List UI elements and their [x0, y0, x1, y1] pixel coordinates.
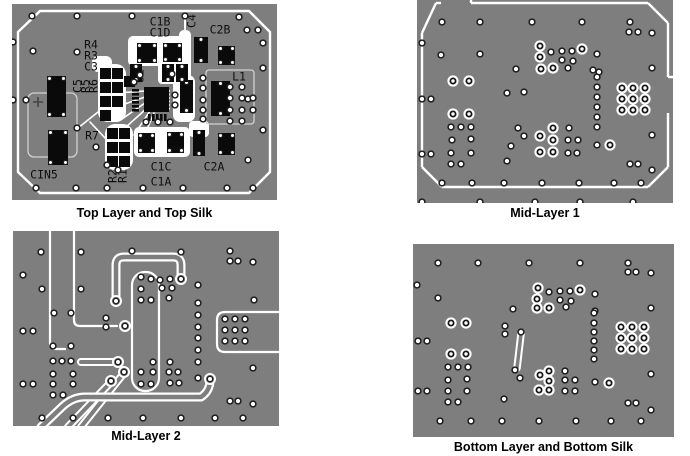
pad-dot [134, 65, 138, 69]
via [591, 329, 597, 335]
via [222, 327, 228, 333]
via [200, 116, 206, 122]
component-pad [132, 101, 139, 104]
via [104, 162, 110, 168]
via [513, 66, 519, 72]
component-pad [48, 130, 68, 165]
via [138, 297, 144, 303]
pad-dot [197, 152, 201, 156]
via [250, 259, 256, 265]
via [74, 125, 80, 131]
silk-label-C2B: C2B [210, 23, 231, 37]
via [590, 67, 596, 73]
via [594, 142, 600, 148]
component-pad [112, 82, 123, 93]
via [477, 19, 483, 25]
via [594, 84, 600, 90]
via [129, 248, 135, 254]
component-pad [107, 128, 118, 139]
via [438, 52, 444, 58]
via [428, 96, 434, 102]
pad-dot [185, 109, 189, 113]
via [521, 133, 527, 139]
via [167, 359, 173, 365]
component-pad [100, 96, 111, 107]
via [419, 199, 425, 203]
pad-dot [199, 38, 203, 42]
via [115, 167, 121, 173]
via [475, 260, 481, 266]
via [50, 371, 56, 377]
via [260, 65, 266, 71]
component-pad [152, 114, 155, 121]
component-pad [100, 68, 111, 79]
via [572, 377, 578, 383]
via [557, 297, 563, 303]
via [167, 119, 173, 125]
via [521, 89, 527, 95]
pad-dot [180, 133, 184, 137]
via [195, 335, 201, 341]
via [232, 338, 238, 344]
via [176, 380, 182, 386]
via [195, 282, 201, 288]
via [649, 167, 655, 173]
via [103, 315, 109, 321]
component-pad [47, 76, 66, 117]
component-pad [100, 82, 111, 93]
via [572, 388, 578, 394]
via [235, 258, 241, 264]
silk-label-C2A: C2A [204, 160, 225, 174]
via [172, 102, 178, 108]
via [577, 260, 583, 266]
via [424, 338, 430, 344]
board-image-bottom-layer-bottom-silk [413, 244, 674, 437]
via [477, 51, 483, 57]
via [242, 327, 248, 333]
via [222, 316, 228, 322]
via [172, 92, 178, 98]
via [78, 249, 84, 255]
via [70, 415, 76, 421]
via [159, 285, 165, 291]
via [235, 398, 241, 404]
via [167, 276, 173, 282]
via [29, 13, 35, 19]
pad-dot [64, 161, 68, 165]
via [104, 185, 110, 191]
via [594, 114, 600, 120]
via [255, 27, 261, 33]
pad-dot [219, 134, 223, 138]
via [576, 180, 582, 186]
via [455, 399, 461, 405]
via [70, 381, 76, 387]
pad-dot [151, 149, 155, 153]
via [468, 150, 474, 156]
via [137, 72, 143, 78]
via [178, 249, 184, 255]
component-pad [107, 142, 118, 153]
component-pad [132, 97, 139, 100]
via [559, 48, 565, 54]
via [591, 356, 597, 362]
via [23, 97, 29, 103]
via [591, 347, 597, 353]
via [227, 258, 233, 264]
via [501, 396, 507, 402]
via [195, 359, 201, 365]
via [415, 338, 421, 344]
via [594, 94, 600, 100]
via [627, 19, 633, 25]
via [140, 415, 146, 421]
via [74, 49, 80, 55]
via [499, 418, 505, 424]
via [627, 161, 633, 167]
pad-dot [48, 113, 52, 117]
pad-dot [178, 44, 182, 48]
via [611, 180, 617, 186]
via [155, 119, 161, 125]
via [464, 376, 470, 382]
via [20, 272, 26, 278]
pad-dot [180, 78, 184, 82]
via [529, 19, 535, 25]
via [236, 14, 242, 20]
via [414, 282, 420, 288]
via [260, 40, 266, 46]
via [195, 312, 201, 318]
via [129, 13, 135, 19]
via [477, 199, 483, 203]
via [93, 144, 99, 150]
via [635, 29, 641, 35]
via [20, 328, 26, 334]
pad-dot [151, 134, 155, 138]
pad-dot [153, 59, 157, 63]
via [78, 286, 84, 292]
pad-dot [48, 77, 52, 81]
pad-dot [197, 131, 201, 135]
via [169, 285, 175, 291]
via [138, 274, 144, 280]
via [175, 369, 181, 375]
via [502, 331, 508, 337]
via [633, 400, 639, 406]
via [536, 418, 542, 424]
component-pad [112, 96, 123, 107]
via [649, 65, 655, 71]
via [439, 19, 445, 25]
via [150, 369, 156, 375]
caption-top-layer-top-silk: Top Layer and Top Silk [12, 206, 277, 220]
caption-bottom-layer-bottom-silk: Bottom Layer and Bottom Silk [413, 440, 674, 454]
panel-mid-layer-2 [13, 231, 279, 426]
via [103, 324, 109, 330]
via [419, 96, 425, 102]
via [468, 418, 474, 424]
via [59, 358, 65, 364]
via [250, 365, 256, 371]
via [200, 97, 206, 103]
via [448, 150, 454, 156]
via [591, 338, 597, 344]
pad-dot [219, 82, 223, 86]
via [200, 107, 206, 113]
via [245, 157, 251, 163]
via [445, 399, 451, 405]
via [592, 291, 598, 297]
via [60, 392, 66, 398]
via [512, 367, 518, 373]
via [565, 65, 571, 71]
via [515, 125, 521, 131]
via [569, 48, 575, 54]
pad-dot [219, 112, 223, 116]
panel-top-layer-top-silk: C1BC1DC4C2BR4R3C3C5R5R6U1L1R7C1CC2AC1AR2… [12, 4, 277, 200]
via [579, 19, 585, 25]
via [50, 392, 56, 398]
via [594, 51, 600, 57]
via [448, 161, 454, 167]
via [166, 295, 172, 301]
component-pad [132, 109, 139, 112]
via [242, 316, 248, 322]
via [30, 48, 36, 54]
pad-dot [168, 133, 172, 137]
component-pad [144, 87, 169, 112]
via [38, 249, 44, 255]
pad-dot [139, 149, 143, 153]
via [224, 185, 230, 191]
via [143, 119, 149, 125]
via [148, 297, 154, 303]
via [227, 118, 233, 124]
via [546, 289, 552, 295]
via [465, 364, 471, 370]
via [195, 324, 201, 330]
via [625, 269, 631, 275]
component-pad [164, 114, 167, 121]
silk-label-C1D: C1D [150, 26, 171, 40]
via [227, 107, 233, 113]
via [455, 364, 461, 370]
component-pad [119, 128, 130, 139]
via [565, 150, 571, 156]
pcb-layers-figure: C1BC1DC4C2BR4R3C3C5R5R6U1L1R7C1CC2AC1AR2… [0, 0, 690, 456]
via [180, 185, 186, 191]
via [435, 295, 441, 301]
via [239, 118, 245, 124]
component-pad [132, 93, 139, 96]
via [570, 58, 576, 64]
via [468, 136, 474, 142]
via [424, 388, 430, 394]
via [138, 286, 144, 292]
via [182, 13, 188, 19]
via [594, 124, 600, 130]
via [648, 305, 654, 311]
via [518, 329, 524, 335]
via [232, 327, 238, 333]
via [195, 300, 201, 306]
via [445, 364, 451, 370]
via [419, 151, 425, 157]
panel-mid-layer-1 [417, 0, 673, 203]
via [250, 107, 256, 113]
pad-dot [164, 44, 168, 48]
via [12, 97, 16, 103]
board-image-top-layer-top-silk: C1BC1DC4C2BR4R3C3C5R5R6U1L1R7C1CC2AC1AR2… [12, 4, 277, 200]
via [251, 297, 257, 303]
via [526, 260, 532, 266]
via [592, 379, 598, 385]
via [517, 375, 523, 381]
pad-dot [199, 59, 203, 63]
via [178, 415, 184, 421]
silk-label-R7: R7 [85, 129, 99, 143]
via [508, 143, 514, 149]
via [30, 328, 36, 334]
via [591, 320, 597, 326]
via [73, 185, 79, 191]
via [568, 298, 574, 304]
via [419, 40, 425, 46]
caption-mid-layer-1: Mid-Layer 1 [417, 206, 673, 220]
component-pad [132, 89, 139, 92]
via [131, 79, 137, 85]
via [594, 74, 600, 80]
via [562, 377, 568, 383]
via [633, 269, 639, 275]
pad-dot [168, 149, 172, 153]
via [635, 161, 641, 167]
via [195, 347, 201, 353]
via [242, 338, 248, 344]
via [138, 381, 144, 387]
via [428, 151, 434, 157]
pad-dot [153, 44, 157, 48]
board-image-mid-layer-1 [417, 0, 673, 203]
via [502, 323, 508, 329]
silk-label-CIN5: CIN5 [30, 168, 58, 182]
via [212, 415, 218, 421]
pad-dot [180, 65, 184, 69]
via [169, 71, 175, 77]
via [562, 388, 568, 394]
silk-label-C3: C3 [84, 60, 98, 74]
via [648, 371, 654, 377]
pad-dot [219, 151, 223, 155]
component-pad [119, 142, 130, 153]
via [548, 49, 554, 55]
component-pad [132, 105, 139, 108]
silk-label-R6: R6 [87, 79, 101, 93]
via [30, 381, 36, 387]
via [532, 199, 538, 203]
via [157, 277, 163, 283]
via [239, 95, 245, 101]
via [591, 310, 597, 316]
via [559, 57, 565, 63]
via [166, 369, 172, 375]
via [557, 288, 563, 294]
via [573, 418, 579, 424]
via [539, 180, 545, 186]
silk-label-C1C: C1C [151, 160, 172, 174]
pad-dot [166, 78, 170, 82]
via [200, 85, 206, 91]
caption-mid-layer-2: Mid-Layer 2 [13, 429, 279, 443]
silk-label-C1A: C1A [151, 175, 172, 189]
pad-dot [138, 59, 142, 63]
via [227, 248, 233, 254]
via [567, 288, 573, 294]
via [577, 199, 583, 203]
via [68, 343, 74, 349]
via [469, 180, 475, 186]
pad-dot [219, 61, 223, 65]
via [504, 90, 510, 96]
via [504, 158, 510, 164]
via [167, 380, 173, 386]
via [575, 137, 581, 143]
via [630, 199, 636, 203]
via [464, 388, 470, 394]
via [648, 407, 654, 413]
via [415, 388, 421, 394]
via [148, 276, 154, 282]
pad-dot [231, 151, 235, 155]
via [239, 84, 245, 90]
via [445, 377, 451, 383]
panel-bottom-layer-bottom-silk [413, 244, 674, 437]
pad-dot [178, 58, 182, 62]
via [68, 358, 74, 364]
via [649, 132, 655, 138]
via [68, 310, 74, 316]
via [70, 371, 76, 377]
pad-dot [49, 131, 53, 135]
via [239, 107, 245, 113]
via [33, 185, 39, 191]
pad-dot [231, 61, 235, 65]
via [437, 418, 443, 424]
via [439, 180, 445, 186]
via [232, 316, 238, 322]
via [105, 415, 111, 421]
via [510, 306, 516, 312]
via [458, 124, 464, 130]
via [448, 124, 454, 130]
via [566, 125, 572, 131]
via [20, 381, 26, 387]
pad-dot [138, 44, 142, 48]
pad-dot [231, 47, 235, 51]
via [638, 418, 644, 424]
via [227, 398, 233, 404]
pad-dot [180, 149, 184, 153]
via [195, 375, 201, 381]
pad-dot [231, 134, 235, 138]
via [50, 358, 56, 364]
pad-dot [164, 58, 168, 62]
pad-dot [166, 65, 170, 69]
via [449, 137, 455, 143]
via [501, 180, 507, 186]
